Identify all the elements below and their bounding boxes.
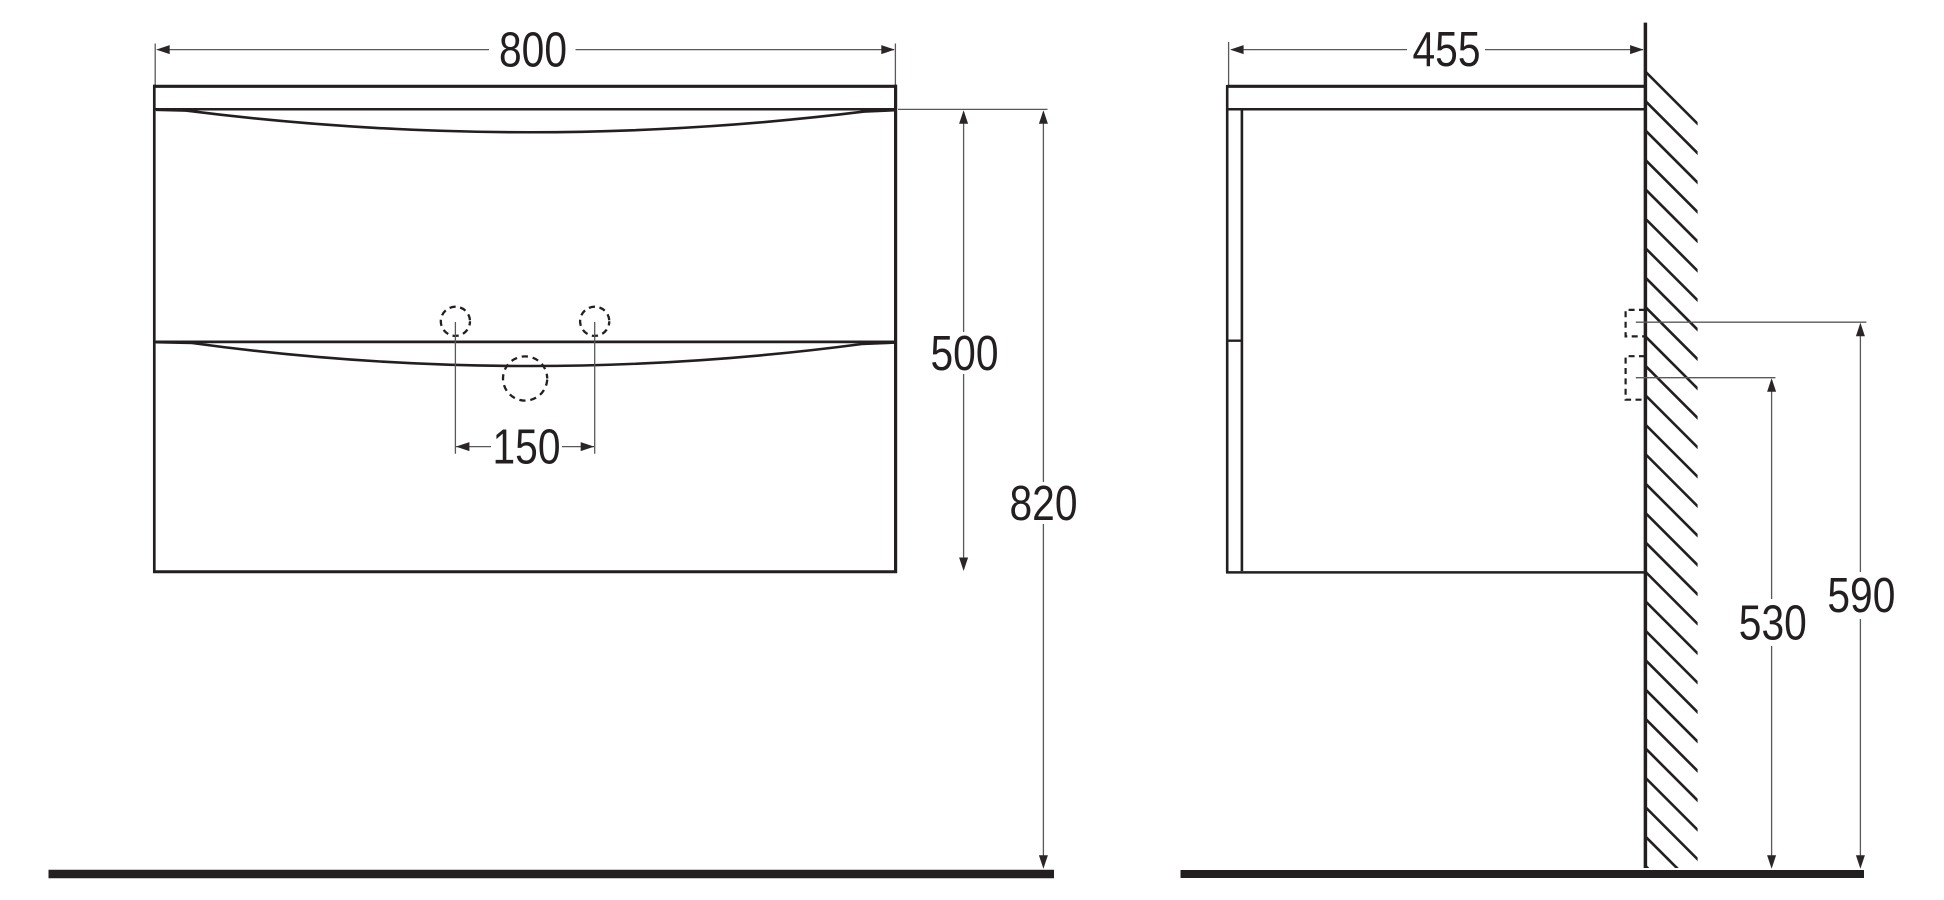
svg-text:820: 820 (1010, 477, 1078, 531)
svg-text:455: 455 (1413, 23, 1481, 77)
svg-text:590: 590 (1827, 569, 1895, 623)
svg-text:500: 500 (931, 327, 999, 381)
svg-text:530: 530 (1739, 596, 1807, 650)
svg-text:800: 800 (499, 24, 567, 78)
svg-text:150: 150 (493, 420, 561, 474)
